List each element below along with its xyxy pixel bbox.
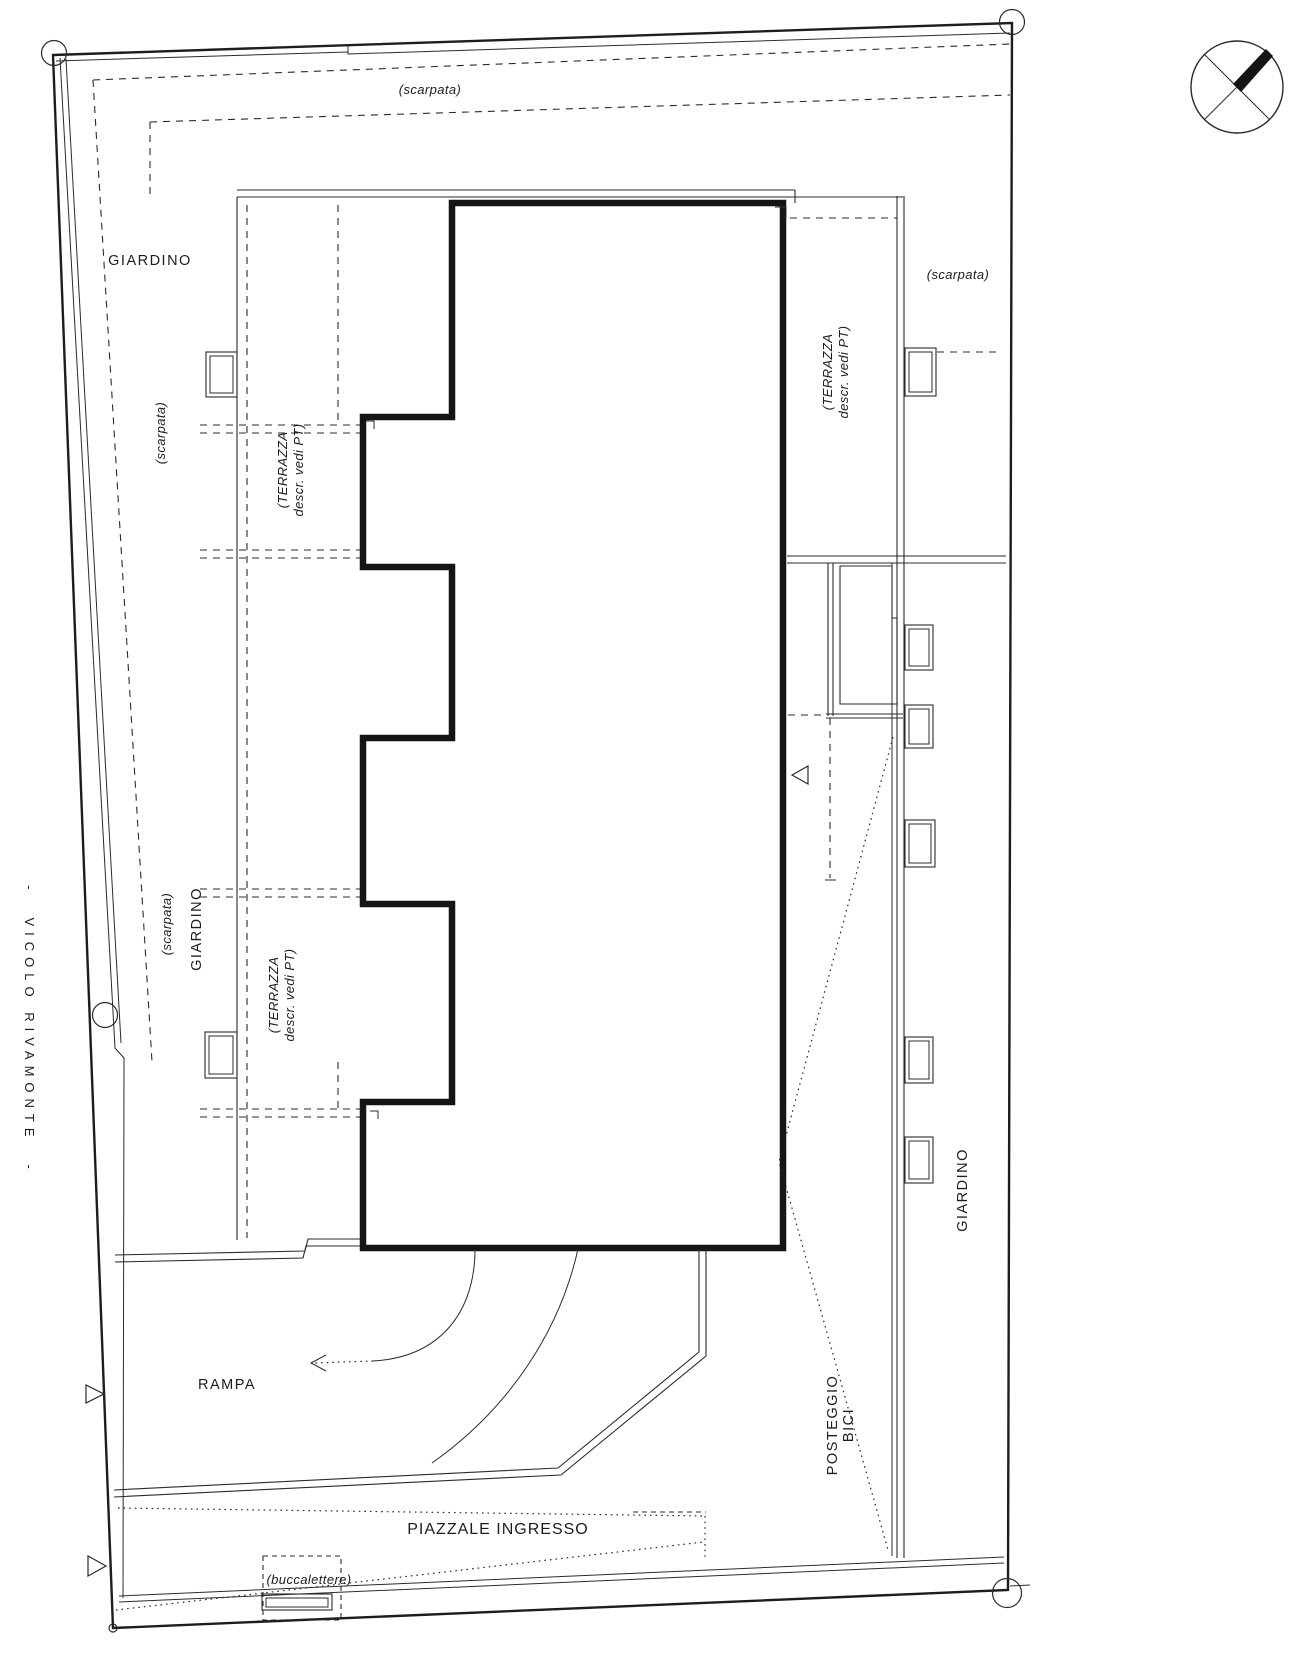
svg-text:-VICOLO RIVAMONTE-: -VICOLO RIVAMONTE- bbox=[22, 885, 37, 1175]
site-plan-drawing: GIARDINO (scarpata) (scarpata) (scarpata… bbox=[0, 0, 1293, 1672]
label-terrazza-3: (TERRAZZA descr. vedi PT) bbox=[820, 326, 851, 419]
label-scarpata-left-upper: (scarpata) bbox=[153, 402, 168, 465]
label-buccalettere: (buccalettere) bbox=[266, 1572, 351, 1587]
window-box bbox=[205, 352, 237, 1078]
label-rampa: RAMPA bbox=[198, 1377, 256, 1393]
label-terrazza-3-line1: (TERRAZZA bbox=[820, 334, 835, 411]
label-terrazza-1-line1: (TERRAZZA bbox=[275, 432, 290, 509]
building-outline bbox=[363, 203, 786, 1248]
label-terrazza-1-line2: descr. vedi PT) bbox=[291, 424, 306, 517]
label-posteggio-line2: BICI bbox=[841, 1408, 857, 1442]
service-structure bbox=[788, 563, 903, 880]
street-dash-end: - bbox=[22, 1165, 37, 1175]
label-posteggio-line1: POSTEGGIO bbox=[825, 1375, 841, 1476]
label-giardino-top: GIARDINO bbox=[108, 253, 192, 269]
label-terrazza-2-line1: (TERRAZZA bbox=[266, 957, 281, 1034]
labels: GIARDINO (scarpata) (scarpata) (scarpata… bbox=[22, 82, 989, 1587]
ramp-outer-curve bbox=[432, 1249, 578, 1463]
label-street: -VICOLO RIVAMONTE- bbox=[22, 885, 37, 1175]
label-giardino-right: GIARDINO bbox=[955, 1148, 971, 1232]
label-scarpata-top: (scarpata) bbox=[399, 82, 462, 97]
north-arrow-compass-icon bbox=[1191, 41, 1283, 133]
label-terrazza-2-line2: descr. vedi PT) bbox=[282, 949, 297, 1042]
window-box bbox=[905, 348, 936, 1183]
street-dash-start: - bbox=[22, 885, 37, 895]
label-terrazza-1: (TERRAZZA descr. vedi PT) bbox=[275, 424, 306, 517]
label-posteggio-bici: POSTEGGIO BICI bbox=[825, 1375, 857, 1476]
label-scarpata-left-lower: (scarpata) bbox=[159, 893, 174, 956]
street-name: VICOLO RIVAMONTE bbox=[22, 917, 37, 1142]
label-giardino-left: GIARDINO bbox=[189, 887, 205, 971]
label-terrazza-3-line2: descr. vedi PT) bbox=[836, 326, 851, 419]
ramp-area bbox=[114, 1249, 706, 1497]
label-terrazza-2: (TERRAZZA descr. vedi PT) bbox=[266, 949, 297, 1042]
ramp-inner-curve bbox=[373, 1249, 475, 1361]
label-piazzale-ingresso: PIAZZALE INGRESSO bbox=[407, 1521, 588, 1538]
arrow-head-icon bbox=[311, 1355, 326, 1371]
plan-sheet: GIARDINO (scarpata) (scarpata) (scarpata… bbox=[0, 0, 1293, 1672]
label-scarpata-right: (scarpata) bbox=[927, 267, 990, 282]
